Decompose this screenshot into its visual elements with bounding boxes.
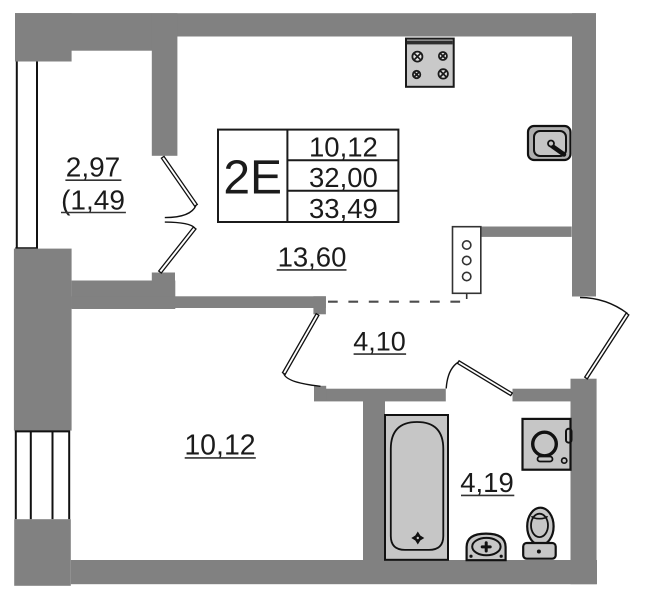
svg-text:32,00: 32,00 — [309, 162, 378, 193]
svg-text:4,10: 4,10 — [353, 326, 406, 356]
svg-text:4,19: 4,19 — [460, 467, 514, 498]
svg-text:13,60: 13,60 — [278, 242, 347, 273]
svg-text:33,49: 33,49 — [309, 193, 378, 224]
svg-text:2,97: 2,97 — [66, 151, 121, 182]
svg-text:(1,49: (1,49 — [61, 184, 125, 215]
svg-text:2E: 2E — [223, 151, 282, 204]
svg-text:10,12: 10,12 — [309, 132, 378, 163]
svg-text:10,12: 10,12 — [184, 430, 255, 462]
